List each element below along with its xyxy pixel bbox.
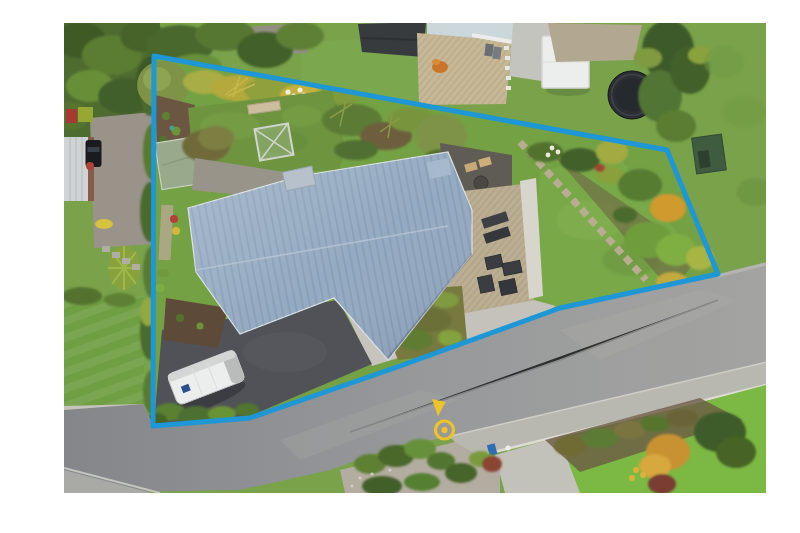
- marker-dot-icon: [441, 427, 447, 433]
- aerial-photo: [0, 0, 800, 533]
- photo-content: [50, 19, 773, 496]
- neighbor-green-shed: [692, 134, 727, 174]
- aerial-photo-page: [0, 0, 800, 533]
- green-bin: [78, 107, 93, 122]
- red-bin: [66, 109, 77, 123]
- greenhouse-frame: [254, 123, 293, 160]
